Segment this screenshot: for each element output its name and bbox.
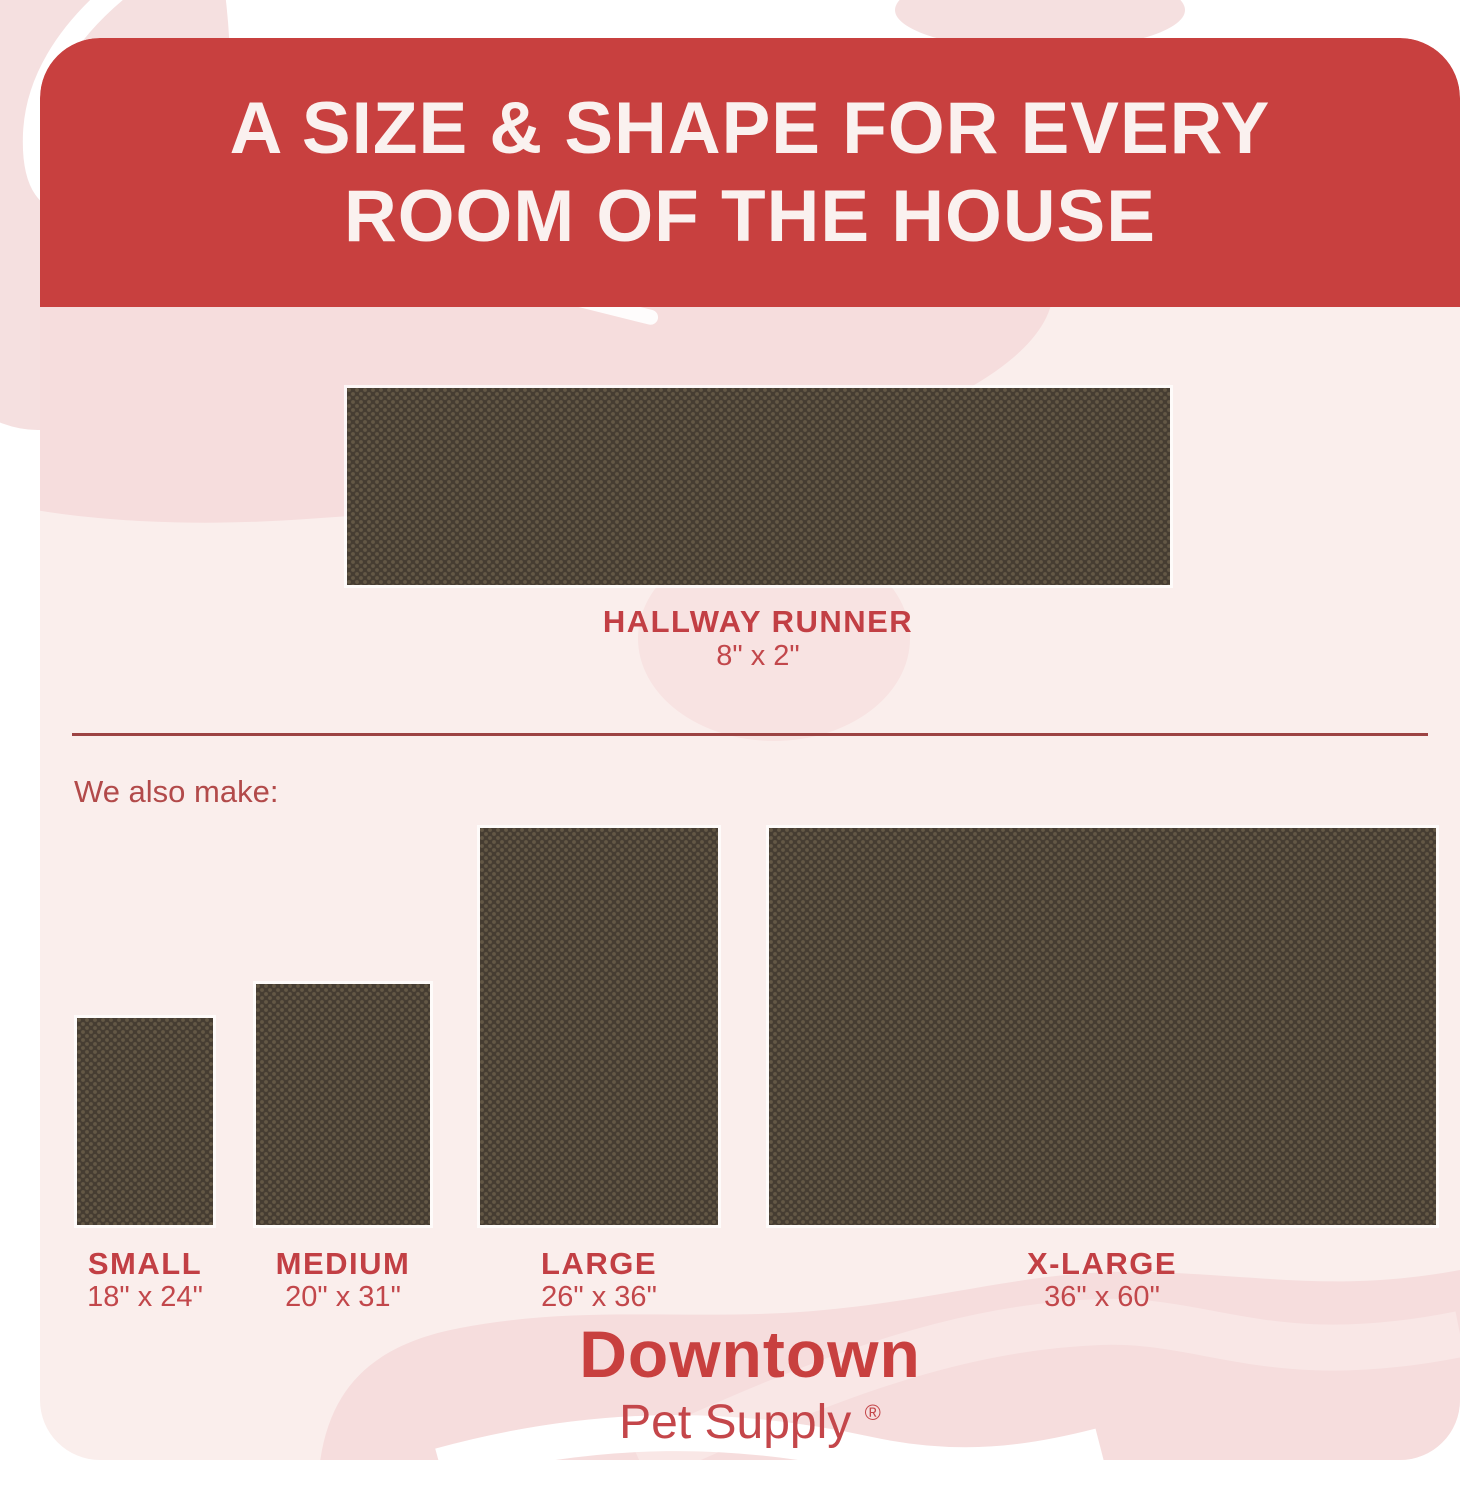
hallway-runner-mat — [347, 388, 1170, 585]
xlarge-mat — [769, 828, 1436, 1225]
page-title-line2: ROOM OF THE HOUSE — [344, 173, 1156, 261]
section-divider — [72, 733, 1428, 736]
page-title-line1: A SIZE & SHAPE FOR EVERY — [230, 85, 1271, 173]
header-banner: A SIZE & SHAPE FOR EVERY ROOM OF THE HOU… — [40, 38, 1460, 307]
large-mat — [480, 828, 718, 1225]
also-make-label: We also make: — [74, 774, 278, 810]
medium-size-name: MEDIUM — [276, 1246, 411, 1282]
small-size-name: SMALL — [88, 1246, 202, 1282]
large-size-dimensions: 26" x 36" — [541, 1281, 657, 1314]
medium-size-dimensions: 20" x 31" — [285, 1281, 401, 1314]
hallway-runner-name: HALLWAY RUNNER — [603, 604, 913, 640]
hallway-runner-dimensions: 8" x 2" — [716, 640, 799, 673]
infographic-page: { "header": { "title_line1": "A SIZE & S… — [0, 0, 1463, 1500]
medium-mat — [256, 984, 430, 1225]
xlarge-size-dimensions: 36" x 60" — [1044, 1281, 1160, 1314]
brand-name: Downtown — [579, 1322, 921, 1386]
brand-tagline-text: Pet Supply — [619, 1396, 851, 1449]
infographic-card: A SIZE & SHAPE FOR EVERY ROOM OF THE HOU… — [40, 38, 1460, 1460]
large-size-name: LARGE — [541, 1246, 657, 1282]
small-size-dimensions: 18" x 24" — [87, 1281, 203, 1314]
registered-mark: ® — [865, 1400, 881, 1425]
small-mat — [77, 1018, 213, 1225]
xlarge-size-name: X-LARGE — [1027, 1246, 1177, 1282]
brand-logo: Downtown Pet Supply ® — [579, 1322, 921, 1448]
brand-tagline: Pet Supply ® — [579, 1388, 921, 1448]
